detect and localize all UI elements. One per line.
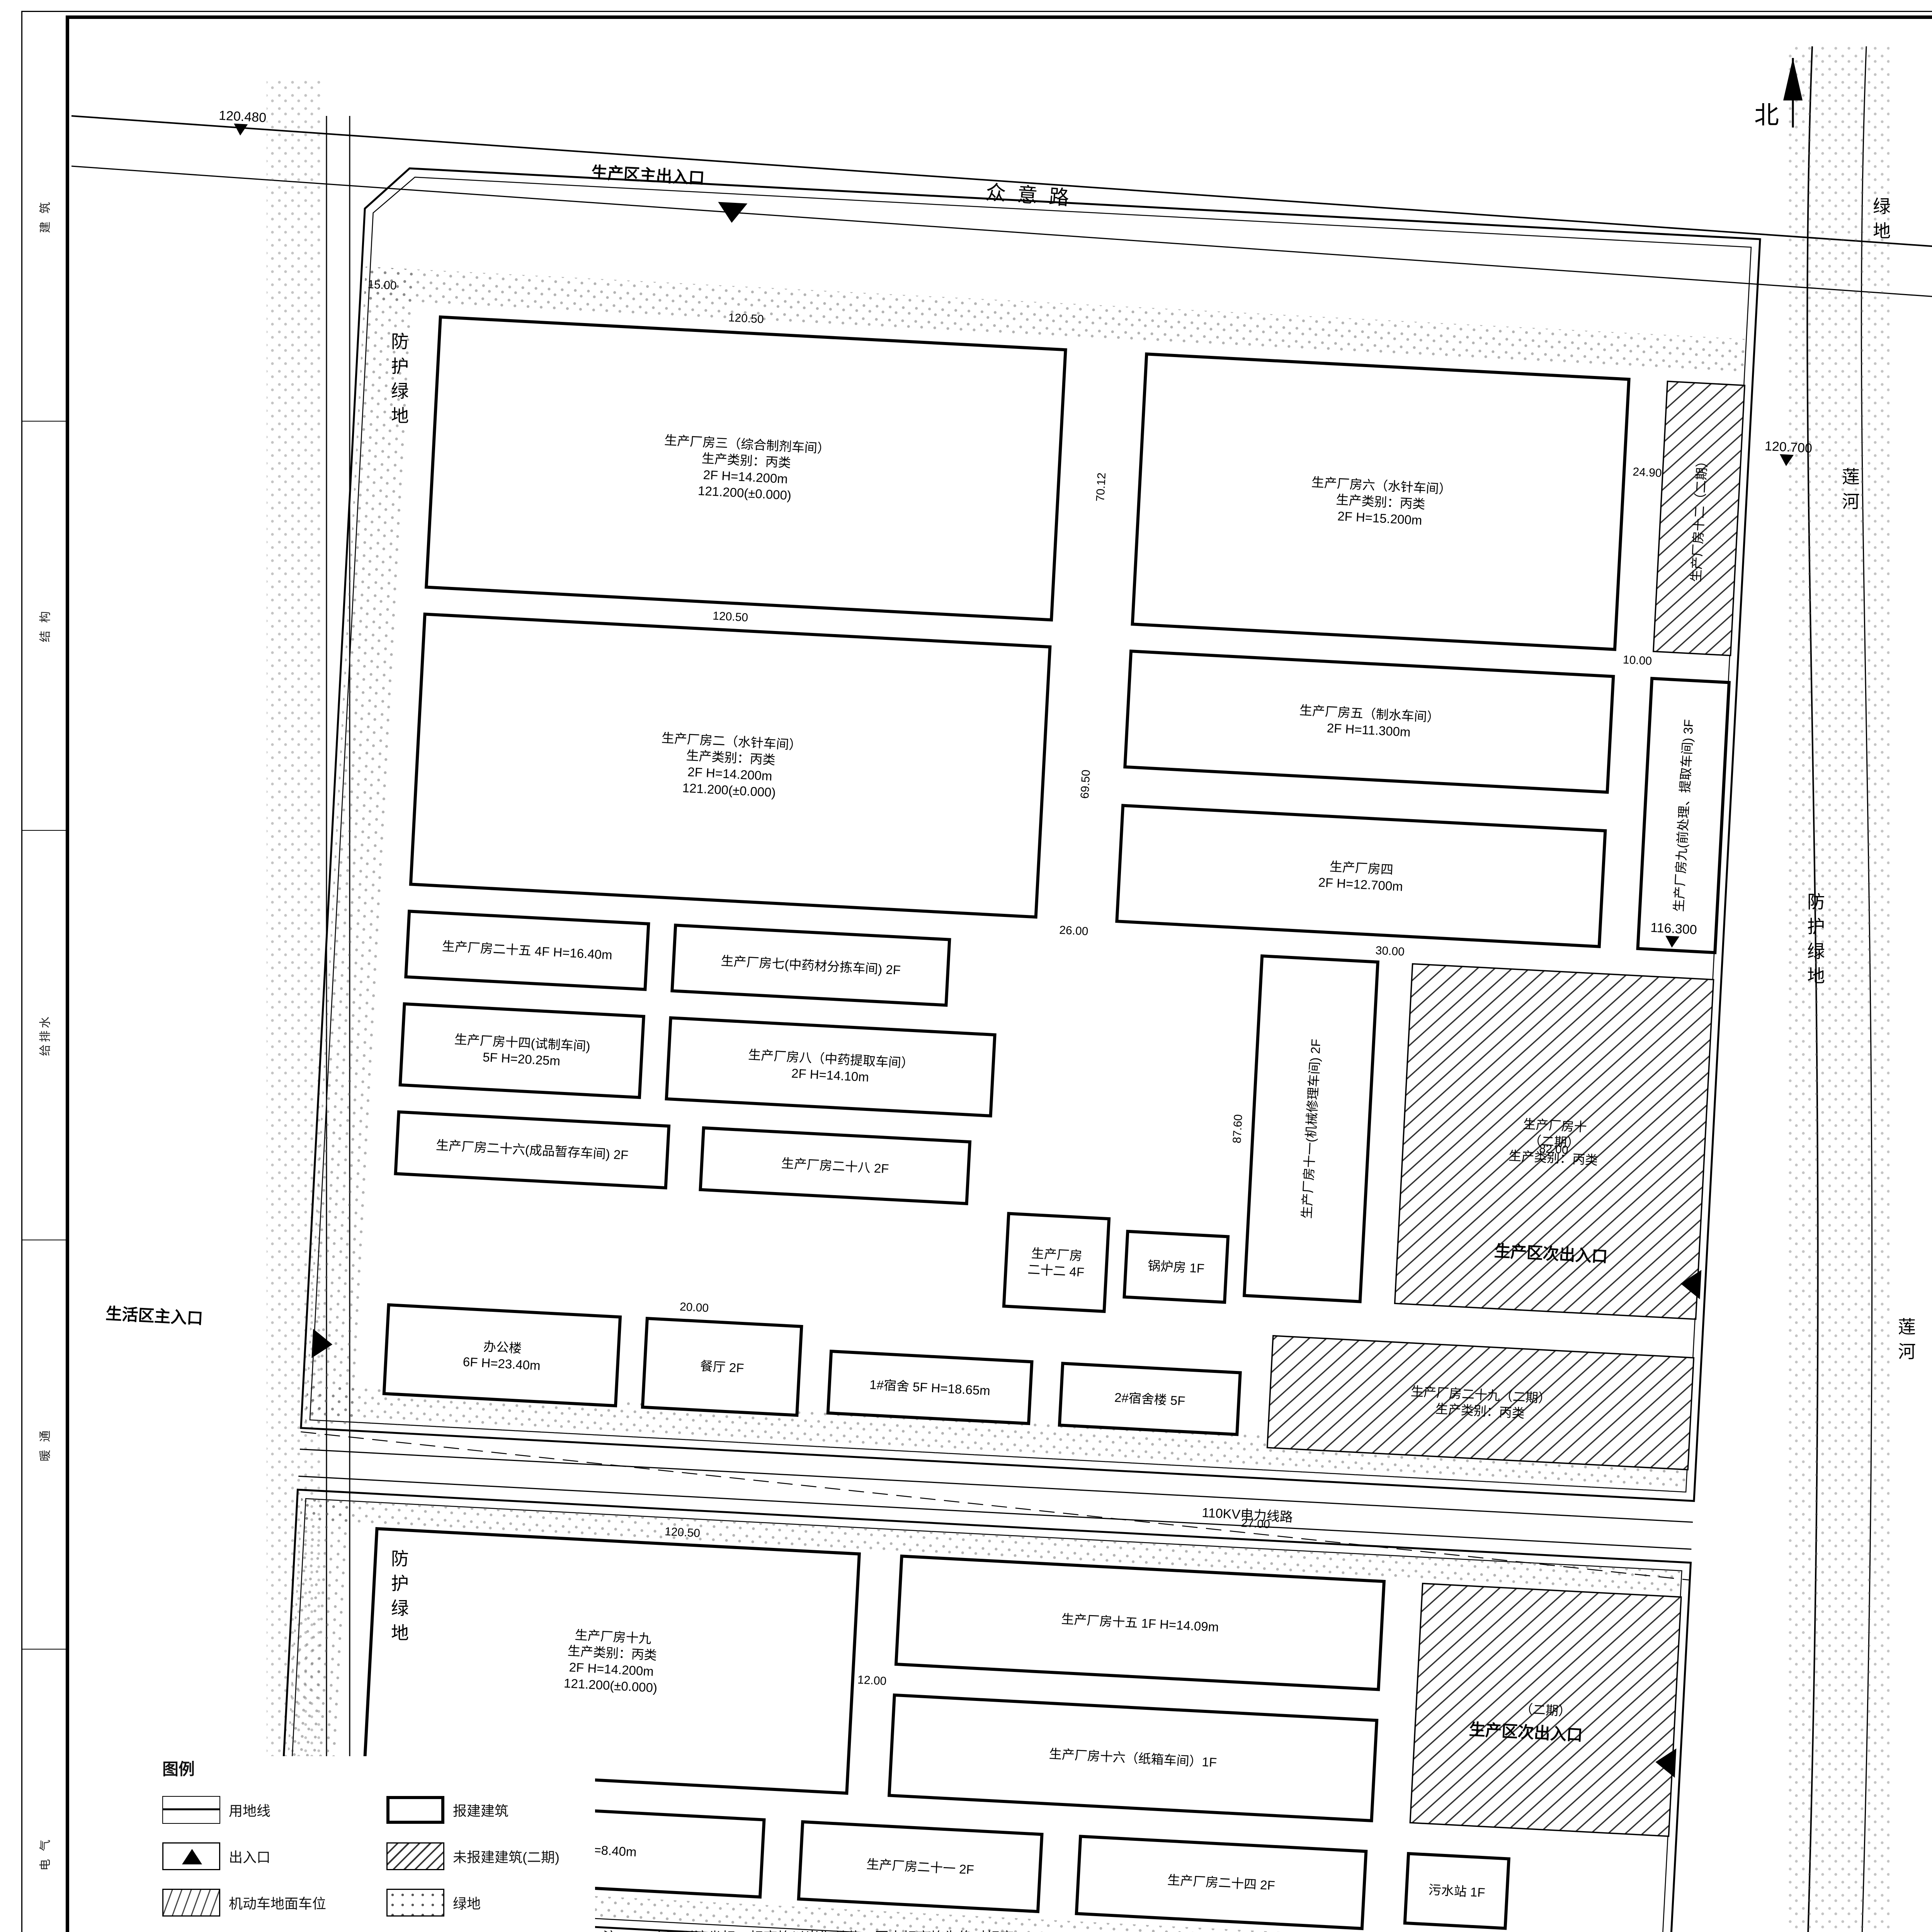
legend-label: 用地线 — [229, 1800, 270, 1820]
legend-label: 报建建筑 — [453, 1800, 509, 1820]
svg-text:莲河: 莲河 — [1898, 1317, 1916, 1362]
legend-item: ♣ ♣防护绿地 — [386, 1926, 595, 1932]
legend-item: 机动车地面车位 — [162, 1879, 371, 1926]
legend-label: 出入口 — [229, 1846, 270, 1866]
building-label: （二期） — [1520, 1702, 1571, 1719]
svg-text:26.00: 26.00 — [1059, 923, 1089, 938]
svg-text:120.700: 120.700 — [1764, 439, 1813, 456]
building-label: 污水站 1F — [1428, 1883, 1485, 1900]
svg-text:30.00: 30.00 — [1375, 944, 1405, 958]
svg-text:120.480: 120.480 — [218, 108, 267, 125]
svg-text:12.00: 12.00 — [857, 1673, 887, 1688]
future-building-symbol — [386, 1842, 444, 1870]
drawing-sheet: 建 筑结 构给排水暖 通电 气 北众意路110KV电力线路生产厂房三（综合制剂车… — [0, 0, 1932, 1932]
legend-label: 绿地 — [453, 1893, 481, 1913]
legend-label: 机动车地面车位 — [229, 1893, 326, 1913]
parking-symbol — [162, 1889, 220, 1917]
legend-item: 绿地 — [386, 1879, 595, 1926]
svg-text:27.00: 27.00 — [1241, 1517, 1270, 1531]
svg-text:87.60: 87.60 — [1231, 1114, 1245, 1144]
legend: 图例 用地线报建建筑出入口未报建建筑(二期)机动车地面车位绿地厂区道路♣ ♣防护… — [162, 1756, 595, 1932]
legend-item: 报建建筑 — [386, 1787, 595, 1833]
legend-label: 未报建建筑(二期) — [453, 1846, 560, 1866]
svg-text:69.50: 69.50 — [1078, 769, 1093, 799]
svg-text:120.50: 120.50 — [664, 1525, 700, 1540]
legend-item: 未报建建筑(二期) — [386, 1833, 595, 1879]
legend-item: 用地线 — [162, 1787, 371, 1833]
plan-note: 注：1、本图所注坐标、标高均以米为单位，图中标高均为绝对标高。 — [603, 1926, 1028, 1932]
redline-symbol — [162, 1796, 220, 1824]
svg-text:20.00: 20.00 — [679, 1300, 709, 1315]
svg-text:10.00: 10.00 — [1622, 653, 1652, 668]
svg-text:15.00: 15.00 — [367, 278, 397, 293]
svg-text:生产区主出入口: 生产区主出入口 — [591, 163, 705, 187]
svg-text:82.00: 82.00 — [1539, 1142, 1569, 1156]
svg-text:70.12: 70.12 — [1094, 472, 1108, 502]
svg-text:116.300: 116.300 — [1650, 920, 1697, 937]
green-symbol — [386, 1889, 444, 1917]
svg-text:北: 北 — [1754, 101, 1779, 129]
entrance-symbol — [162, 1842, 220, 1870]
building-label: 餐厅 2F — [700, 1359, 744, 1375]
legend-item: 出入口 — [162, 1833, 371, 1879]
approved-building-symbol — [386, 1796, 444, 1824]
building-label: 锅炉房 1F — [1148, 1259, 1205, 1276]
svg-text:120.50: 120.50 — [728, 311, 764, 326]
legend-title: 图例 — [162, 1756, 595, 1780]
legend-item: 厂区道路 — [162, 1926, 371, 1932]
svg-text:120.50: 120.50 — [713, 609, 748, 624]
site-plan: 北众意路110KV电力线路生产厂房三（综合制剂车间）生产类别：丙类2F H=14… — [0, 0, 1932, 1932]
svg-text:生活区主入口: 生活区主入口 — [105, 1304, 203, 1328]
svg-text:24.90: 24.90 — [1633, 466, 1662, 480]
